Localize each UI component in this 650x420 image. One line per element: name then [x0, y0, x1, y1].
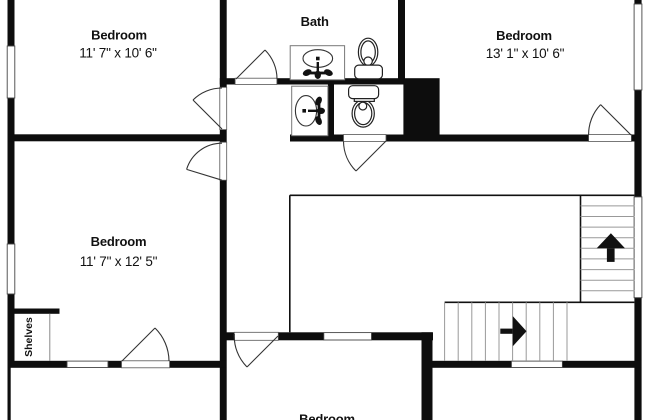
svg-text:Bedroom: Bedroom: [299, 412, 355, 420]
svg-text:11' 7" x 10' 6": 11' 7" x 10' 6": [79, 46, 157, 61]
svg-text:Bedroom: Bedroom: [496, 28, 552, 43]
svg-text:Bath: Bath: [301, 14, 329, 29]
svg-text:11' 7" x 12' 5": 11' 7" x 12' 5": [80, 254, 158, 269]
svg-text:Bedroom: Bedroom: [91, 28, 147, 43]
svg-text:Shelves: Shelves: [23, 317, 35, 357]
svg-text:Bedroom: Bedroom: [91, 234, 147, 249]
svg-text:13' 1" x 10' 6": 13' 1" x 10' 6": [486, 46, 565, 61]
